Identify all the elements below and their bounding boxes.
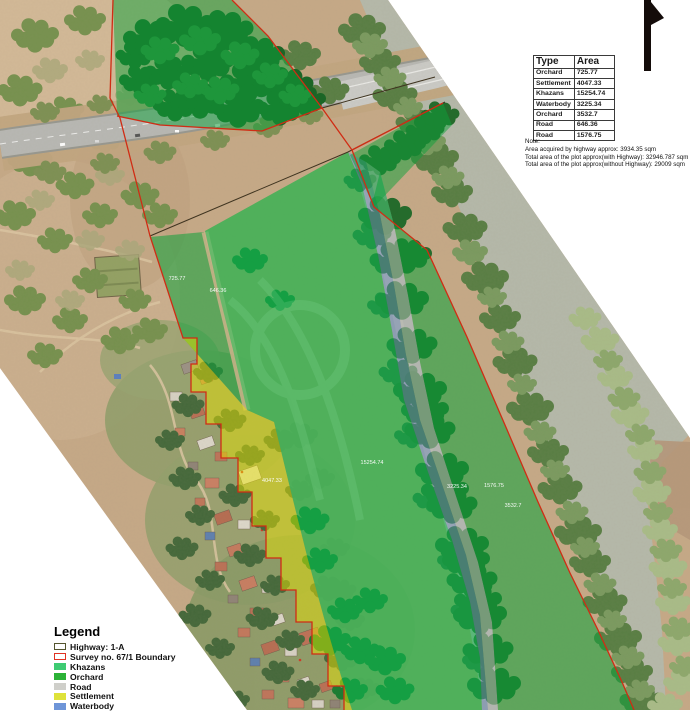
legend-label: Khazans <box>70 662 105 672</box>
legend: Legend Highway: 1-ASurvey no. 67/1 Bound… <box>54 624 176 711</box>
legend-item-road: Road <box>54 682 176 692</box>
note: Note: Area acquired by highway approx: 3… <box>525 138 688 169</box>
legend-label: Settlement <box>70 691 114 701</box>
area-label: 725.77 <box>169 276 186 282</box>
note-line: Total area of the plot approx(without Hi… <box>525 161 688 169</box>
table-header-row: TypeArea <box>534 56 615 69</box>
legend-title: Legend <box>54 624 176 639</box>
legend-item-settlement: Settlement <box>54 691 176 701</box>
map-page: 725.77 646.36 4047.33 15254.74 3225.34 1… <box>0 0 690 710</box>
area-label: 3532.7 <box>505 503 522 509</box>
legend-item-khazans: Khazans <box>54 662 176 672</box>
legend-swatch <box>54 683 66 690</box>
table-row: Road646.36 <box>534 120 615 130</box>
area-label: 646.36 <box>210 288 227 294</box>
table-header-cell: Type <box>534 56 575 69</box>
area-label: 4047.33 <box>262 478 282 484</box>
legend-swatch <box>54 653 66 660</box>
legend-label: Survey no. 67/1 Boundary <box>70 652 176 662</box>
table-row: Settlement4047.33 <box>534 78 615 88</box>
area-label: 1576.75 <box>484 483 504 489</box>
legend-swatch <box>54 643 66 650</box>
area-label: 15254.74 <box>361 460 384 466</box>
note-line: Area acquired by highway approx: 3934.35… <box>525 146 688 154</box>
legend-swatch <box>54 693 66 700</box>
table-row: Waterbody3225.34 <box>534 99 615 109</box>
note-line: Total area of the plot approx(with Highw… <box>525 154 688 162</box>
legend-label: Highway: 1-A <box>70 642 124 652</box>
table-row: Orchard725.77 <box>534 68 615 78</box>
table-row: Orchard3532.7 <box>534 110 615 120</box>
legend-item-highway: Highway: 1-A <box>54 642 176 652</box>
legend-label: Orchard <box>70 672 103 682</box>
legend-item-orchard: Orchard <box>54 672 176 682</box>
note-title: Note: <box>525 138 688 146</box>
table-header-cell: Area <box>574 56 614 69</box>
legend-items: Highway: 1-ASurvey no. 67/1 BoundaryKhaz… <box>54 642 176 711</box>
legend-swatch <box>54 703 66 710</box>
note-lines: Area acquired by highway approx: 3934.35… <box>525 146 688 169</box>
legend-label: Road <box>70 682 91 692</box>
legend-swatch <box>54 663 66 670</box>
area-label: 3225.34 <box>447 484 467 490</box>
legend-item-survey-boundary: Survey no. 67/1 Boundary <box>54 652 176 662</box>
legend-swatch <box>54 673 66 680</box>
table-row: Khazans15254.74 <box>534 89 615 99</box>
area-table: TypeArea Orchard725.77Settlement4047.33K… <box>533 55 615 141</box>
